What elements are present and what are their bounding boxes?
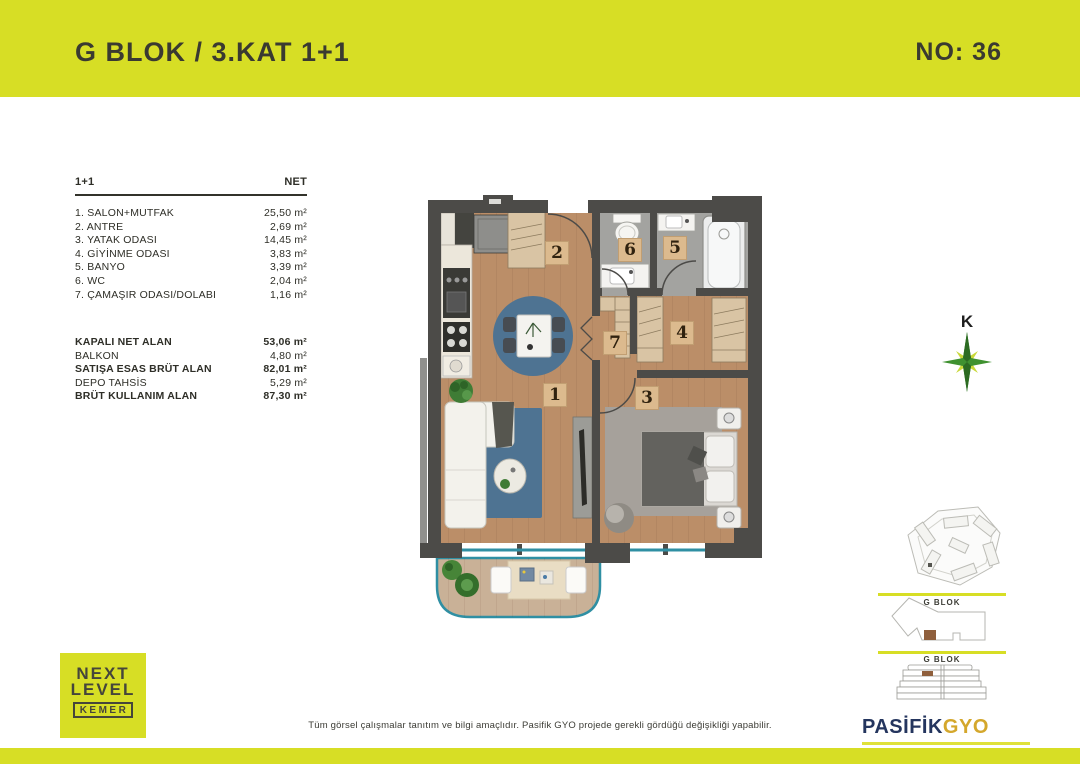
floor-plan <box>410 185 790 645</box>
table-row: 4. GİYİNME ODASI3,83 m² <box>75 248 307 262</box>
logo-underline <box>862 742 1030 745</box>
block-floor-thumbnail <box>885 596 1010 649</box>
balcony-chair <box>566 567 586 593</box>
table-row: SATIŞA ESAS BRÜT ALAN82,01 m² <box>75 363 307 377</box>
block-elevation-thumbnail <box>895 663 990 706</box>
kitchen-sink <box>450 360 462 372</box>
table-row: BALKON4,80 m² <box>75 350 307 364</box>
area-table: 1. SALON+MUTFAK25,50 m² 2. ANTRE2,69 m² … <box>75 207 307 302</box>
room-label-giyinme-odasi: 4 <box>670 321 694 345</box>
pasifik-gyo-logo: PASİFİKGYO <box>862 716 1032 739</box>
kitchen-cabinet <box>455 213 474 248</box>
table-row: KAPALI NET ALAN53,06 m² <box>75 336 307 350</box>
unit-highlight <box>924 630 936 640</box>
compass-icon <box>935 330 999 399</box>
table-row: BRÜT KULLANIM ALAN87,30 m² <box>75 390 307 404</box>
room-label-antre: 2 <box>545 241 569 265</box>
unit-number: NO: 36 <box>915 38 1002 67</box>
table-row: 7. ÇAMAŞIR ODASI/DOLABI1,16 m² <box>75 289 307 303</box>
unit-highlight <box>922 671 933 676</box>
table-row: DEPO TAHSİS5,29 m² <box>75 377 307 391</box>
floor-plan-drawing <box>410 185 790 645</box>
area-table-header: 1+1 NET <box>75 176 307 196</box>
room-label-camasir: 7 <box>603 331 627 355</box>
balcony-chair <box>491 567 511 593</box>
floorplan-sheet: G BLOK / 3.KAT 1+1 NO: 36 1+1 NET 1. SAL… <box>0 0 1080 764</box>
table-row: 3. YATAK ODASI14,45 m² <box>75 234 307 248</box>
cooktop <box>443 322 470 352</box>
summary-table: KAPALI NET ALAN53,06 m² BALKON4,80 m² SA… <box>75 336 307 404</box>
dining-table <box>517 315 551 357</box>
room-label-wc: 6 <box>618 238 642 262</box>
room-label-salon: 1 <box>543 383 567 407</box>
entry-wardrobe <box>508 210 545 268</box>
separator-line <box>878 651 1006 654</box>
table-row: 6. WC2,04 m² <box>75 275 307 289</box>
area-net-label: NET <box>284 176 307 188</box>
area-type-label: 1+1 <box>75 176 94 188</box>
publisher-name: PASİFİK <box>862 716 943 738</box>
bottom-accent-strip <box>0 748 1080 764</box>
table-row: 5. BANYO3,39 m² <box>75 261 307 275</box>
site-plan-thumbnail <box>900 505 1015 595</box>
page-title: G BLOK / 3.KAT 1+1 <box>75 37 350 68</box>
table-row: 1. SALON+MUTFAK25,50 m² <box>75 207 307 221</box>
table-row: 2. ANTRE2,69 m² <box>75 221 307 235</box>
balcony-mat <box>508 561 570 599</box>
room-label-yatak-odasi: 3 <box>635 386 659 410</box>
compass-north-label: K <box>935 312 999 332</box>
logo-line-kemer: KEMER <box>73 702 134 718</box>
publisher-suffix: GYO <box>943 716 989 738</box>
coffee-table <box>494 459 526 493</box>
room-label-banyo: 5 <box>663 236 687 260</box>
logo-line-level: LEVEL <box>60 682 146 698</box>
